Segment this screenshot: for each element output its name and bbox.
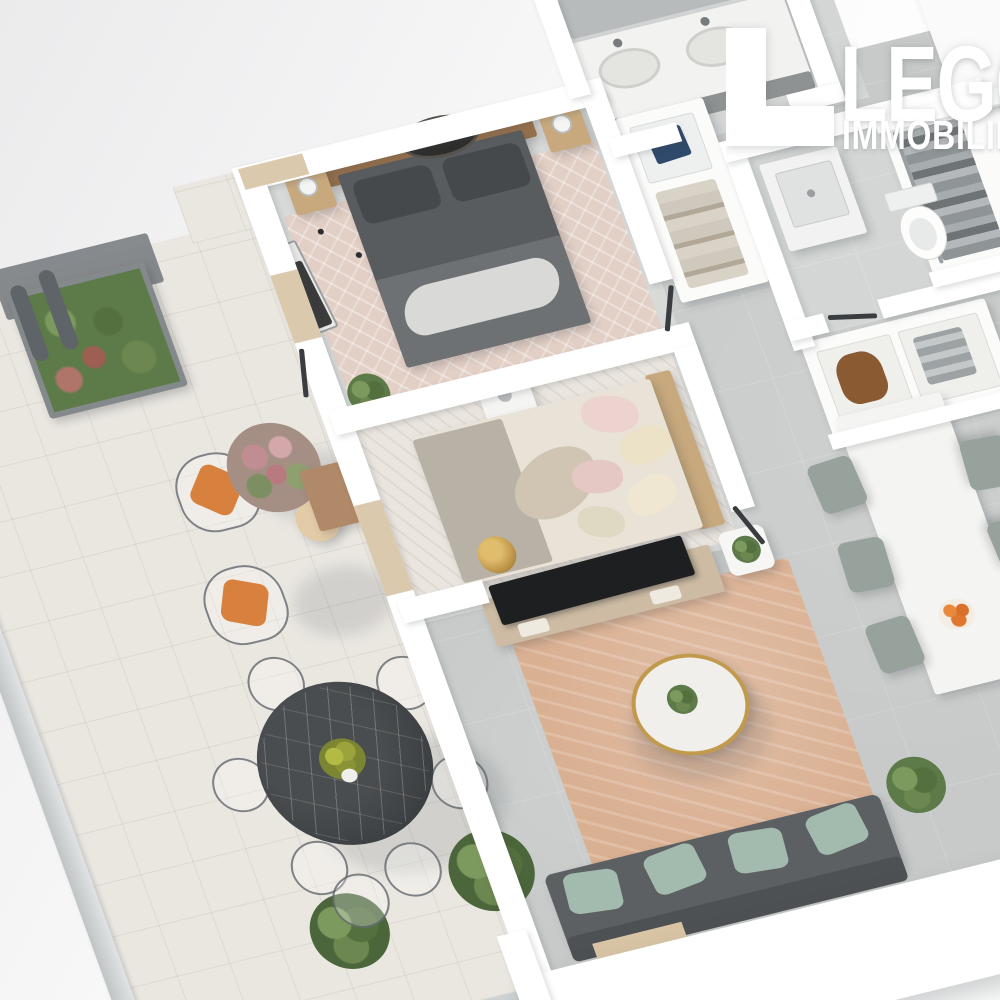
orange-cushion-2 bbox=[220, 578, 269, 628]
brand-logo: LEGG IMMOBILIER bbox=[726, 20, 1000, 160]
leggett-l-mark-icon bbox=[726, 28, 834, 146]
brand-tagline: IMMOBILIER bbox=[842, 112, 1000, 159]
floorplan-render: LEGG IMMOBILIER bbox=[0, 0, 1000, 1000]
sofa-cushion-3 bbox=[726, 826, 790, 875]
sofa-cushion-1 bbox=[561, 867, 625, 915]
l-mark-horizontal-bar bbox=[726, 106, 834, 146]
pastel-pillow-1 bbox=[580, 395, 640, 433]
